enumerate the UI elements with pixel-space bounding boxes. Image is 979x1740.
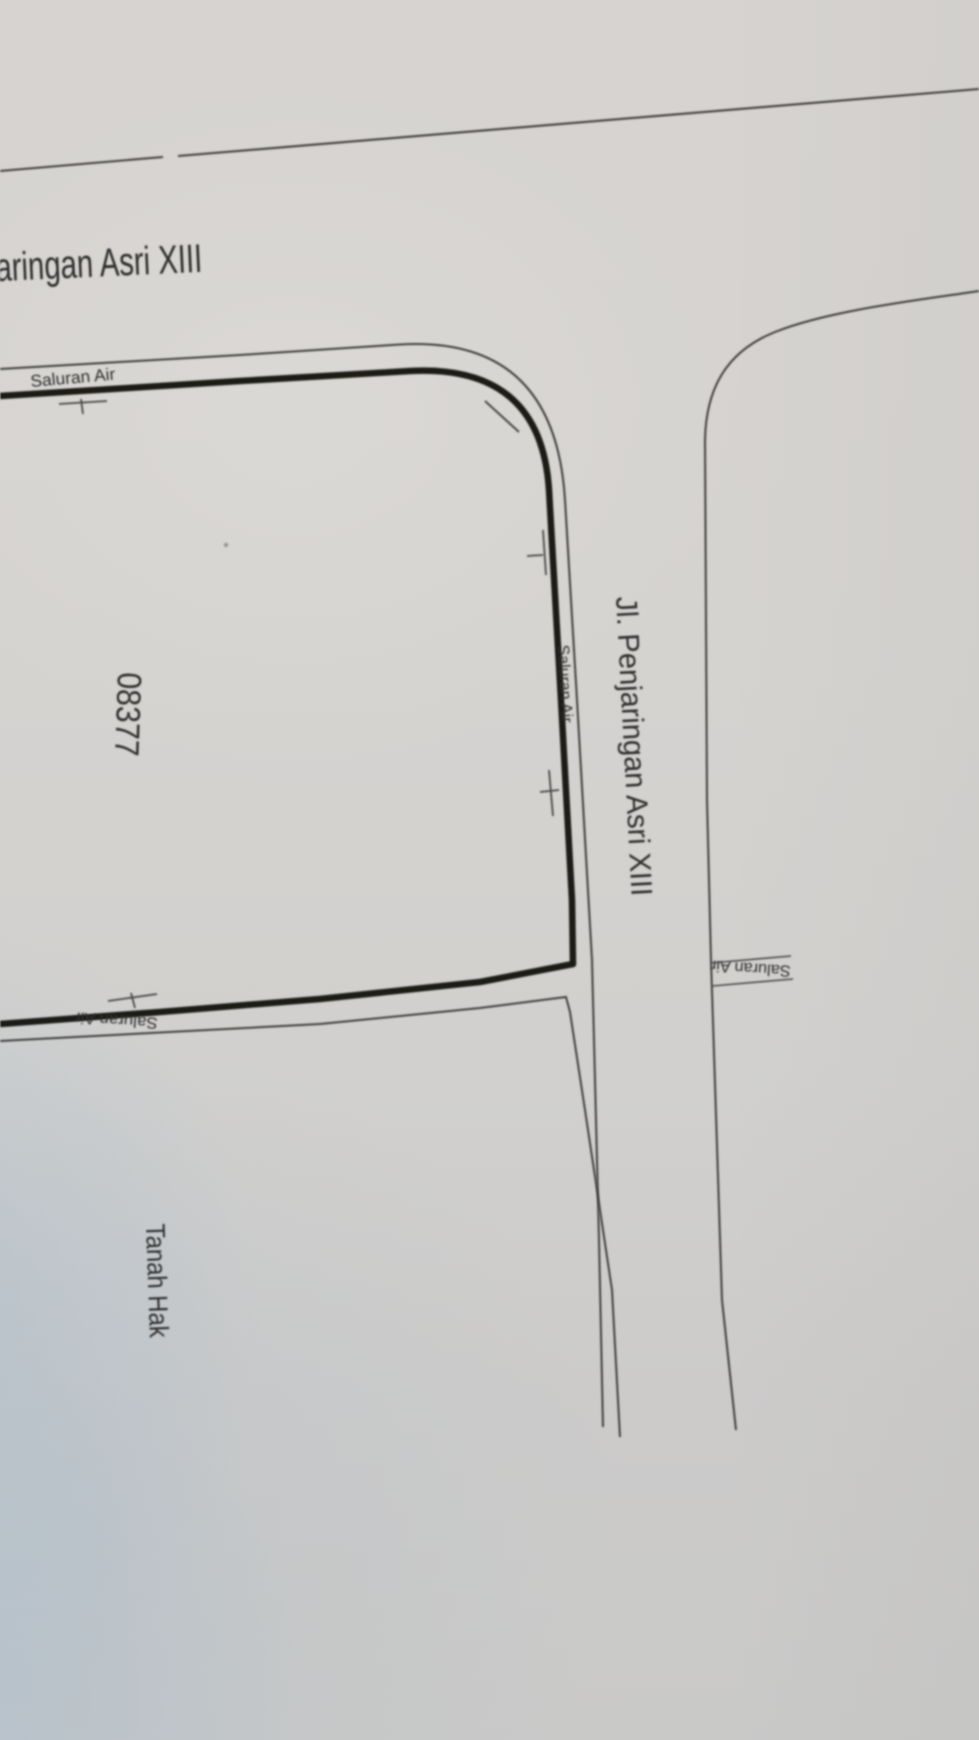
svg-text:08377: 08377	[107, 672, 148, 757]
svg-text:Tanah Hak: Tanah Hak	[140, 1223, 174, 1338]
svg-text:Saluran Air: Saluran Air	[554, 644, 575, 723]
svg-text:Jl. Penjaringan Asri XIII: Jl. Penjaringan Asri XIII	[609, 596, 658, 897]
svg-text:aringan Asri XIII: aringan Asri XIII	[0, 237, 203, 290]
